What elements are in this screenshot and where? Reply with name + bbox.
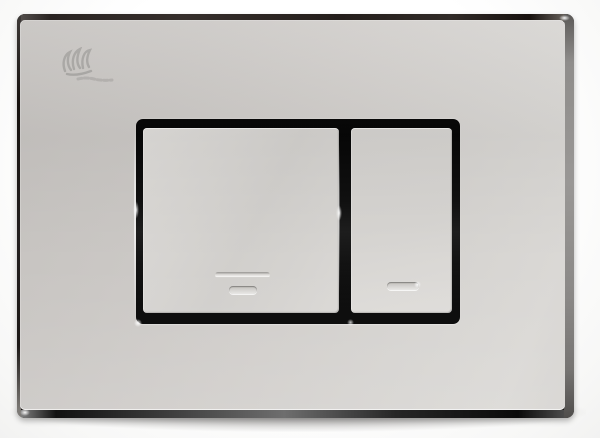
flush-plate xyxy=(17,14,574,418)
button-recess-frame xyxy=(136,119,460,324)
photo-caption: Front view of a polished chrome dual-flu… xyxy=(0,0,1,1)
photo-background: Front view of a polished chrome dual-flu… xyxy=(0,0,600,438)
specular-highlight xyxy=(347,319,354,326)
half-flush-button xyxy=(351,128,452,313)
brand-logo-icon xyxy=(55,47,129,91)
half-flush-line-icon xyxy=(387,282,419,290)
full-flush-line-icon xyxy=(215,272,270,278)
plate-face xyxy=(20,20,565,410)
plate-bottom-bevel xyxy=(17,410,574,418)
full-flush-button xyxy=(143,128,339,313)
specular-highlight xyxy=(134,319,142,327)
specular-highlight xyxy=(134,129,136,314)
plate-right-bevel xyxy=(564,14,574,418)
specular-highlight xyxy=(133,201,139,219)
full-flush-pill-icon xyxy=(229,286,257,294)
